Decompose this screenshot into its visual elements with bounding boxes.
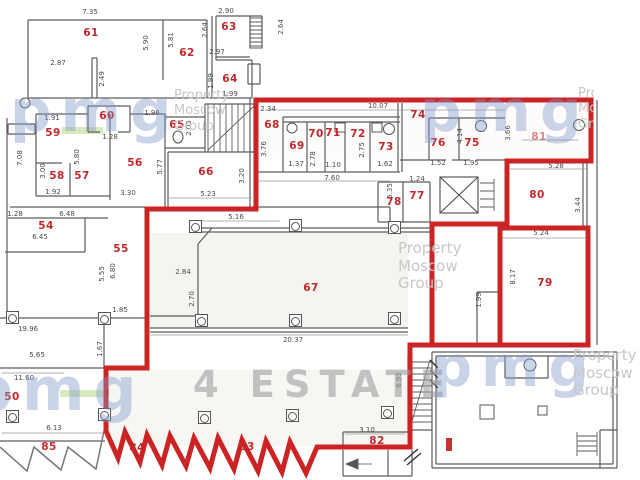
dimension-label: 6.80	[109, 263, 117, 279]
dimension-label: 1.24	[409, 175, 425, 183]
dimension-label: 1.28	[7, 210, 23, 218]
toilet-icon	[384, 124, 395, 135]
dimension-label: 10.07	[368, 102, 388, 110]
corner-stair	[577, 432, 597, 456]
room-number-54: 54	[38, 220, 54, 232]
column-circle	[100, 315, 109, 324]
room-number-84: 84	[129, 442, 145, 454]
room-number-78: 78	[386, 196, 402, 208]
watermark-brand-line: Group	[578, 117, 594, 132]
watermark-brand-line: Property	[174, 88, 229, 103]
dimension-label: 5.81	[167, 32, 175, 48]
room-number-71: 71	[325, 127, 341, 139]
dimension-label: 2.87	[50, 59, 66, 67]
column-icon	[286, 409, 299, 422]
dimension-label: 3.20	[238, 168, 246, 184]
dimension-label: 2.78	[309, 151, 317, 167]
watermark-pmg-logo: pmg	[0, 360, 145, 420]
dimension-label: 6.13	[46, 424, 62, 432]
room-number-57: 57	[74, 170, 90, 182]
room-number-83: 83	[239, 441, 255, 453]
ladder-stair	[250, 18, 262, 48]
column-circle	[383, 409, 392, 418]
dimension-label: 5.90	[142, 35, 150, 51]
dimension-label: 5.77	[156, 159, 164, 175]
dimension-label: 3.10	[359, 426, 375, 434]
dimension-label: 1.95	[463, 159, 479, 167]
watermark-brand-text: PropertyMoscowGroup	[578, 86, 594, 132]
column-circle	[8, 314, 17, 323]
watermark-brand-text: PropertyMoscowGroup	[174, 88, 229, 134]
room-number-82: 82	[369, 435, 385, 447]
dimension-label: 2.90	[218, 7, 234, 15]
watermark-pmg-logo: pmg	[10, 82, 180, 140]
basin-icon	[372, 123, 382, 132]
room-number-70: 70	[308, 128, 324, 140]
shaft-ladder	[480, 179, 494, 211]
dimension-label: 5.24	[533, 229, 549, 237]
dimension-label: 3.76	[260, 141, 268, 157]
column-icon	[289, 314, 302, 327]
watermark-brand-line: Group	[398, 275, 461, 293]
column-icon	[198, 411, 211, 424]
watermark-4estate: 4 ESTATE	[193, 363, 454, 406]
watermark-brand-text: PropertyMoscowGroup	[573, 347, 636, 400]
dimension-label: 2.64	[201, 22, 209, 38]
dimension-label: 1.37	[288, 160, 304, 168]
dimension-label: 3.00	[39, 163, 47, 179]
room-number-56: 56	[127, 157, 143, 169]
elevator-shaft	[440, 177, 478, 213]
watermark-brand-line: Moscow	[578, 101, 594, 116]
dimension-label: 1.10	[325, 161, 341, 169]
room-number-55: 55	[113, 243, 129, 255]
column-icon	[98, 312, 111, 325]
dimension-label: 20.37	[283, 336, 303, 344]
column-icon	[6, 311, 19, 324]
dimension-label: 3.30	[120, 189, 136, 197]
column-circle	[200, 414, 209, 423]
room-number-67: 67	[303, 282, 319, 294]
watermark-brand-line: Group	[573, 382, 636, 400]
column-circle	[288, 412, 297, 421]
dimension-label: 5.23	[200, 190, 216, 198]
dimension-label: 1.52	[430, 159, 446, 167]
dimension-label: 8.17	[509, 269, 517, 285]
toilet-icon	[287, 123, 297, 133]
column-circle	[390, 224, 399, 233]
dimension-label: 5.55	[98, 266, 106, 282]
dimension-label: 7.08	[16, 150, 24, 166]
room-number-77: 77	[409, 190, 425, 202]
watermark-brand-line: Group	[174, 119, 229, 134]
column-circle	[291, 222, 300, 231]
dimension-label: 2.34	[260, 105, 276, 113]
column-icon	[388, 221, 401, 234]
room-number-58: 58	[49, 170, 65, 182]
room-number-68: 68	[264, 119, 280, 131]
column-icon	[289, 219, 302, 232]
door-arrow	[346, 459, 372, 469]
dimension-label: 2.64	[277, 19, 285, 35]
watermark-brand-line: Property	[398, 240, 461, 258]
dimension-label: 7.60	[324, 174, 340, 182]
column-circle	[390, 315, 399, 324]
dimension-label: 1.85	[112, 306, 128, 314]
column-icon	[388, 312, 401, 325]
dimension-label: 1.99	[475, 292, 483, 308]
dimension-label: 5.28	[548, 162, 564, 170]
dimension-label: 1.92	[45, 188, 61, 196]
room-number-69: 69	[289, 140, 305, 152]
pillar-square	[538, 406, 547, 415]
watermark-brand-line: Moscow	[174, 103, 229, 118]
room-number-72: 72	[350, 128, 366, 140]
watermark-brand-line: Property	[573, 347, 636, 365]
pillar-square	[480, 405, 494, 419]
watermark-brand-text: PropertyMoscowGroup	[398, 240, 461, 293]
room-number-64: 64	[222, 73, 238, 85]
dimension-label: 1.99	[207, 73, 215, 89]
dimension-label: 5.16	[228, 213, 244, 221]
room-number-73: 73	[378, 141, 394, 153]
room-number-63: 63	[221, 21, 237, 33]
room-number-62: 62	[179, 47, 195, 59]
room-number-85: 85	[41, 441, 57, 453]
column-icon	[195, 314, 208, 327]
room-number-79: 79	[537, 277, 553, 289]
column-circle	[191, 223, 200, 232]
room-number-80: 80	[529, 189, 545, 201]
dimension-label: 6.45	[32, 233, 48, 241]
column-circle	[197, 317, 206, 326]
watermark-pmg-logo: pmg	[420, 82, 590, 140]
watermark-brand-line: Moscow	[398, 258, 461, 276]
room-number-61: 61	[83, 27, 99, 39]
room-number-66: 66	[198, 166, 214, 178]
column-icon	[189, 220, 202, 233]
dimension-label: 2.75	[358, 142, 366, 158]
dimension-label: 6.48	[59, 210, 75, 218]
dimension-label: 2.97	[209, 48, 225, 56]
dimension-label: 19.96	[18, 325, 38, 333]
dimension-label: 2.70	[188, 291, 196, 307]
column-icon	[381, 406, 394, 419]
watermark-brand-line: Property	[578, 86, 594, 101]
red-marker	[446, 438, 452, 451]
dimension-label: 7.35	[82, 8, 98, 16]
dimension-label: 5.80	[73, 149, 81, 165]
dimension-label: 3.44	[574, 197, 582, 213]
column-circle	[291, 317, 300, 326]
floor-plan: 4 ESTATE 5054555657585960616263646566676…	[0, 0, 640, 480]
dimension-label: 1.62	[377, 160, 393, 168]
dimension-label: 2.84	[175, 268, 191, 276]
watermark-brand-line: Moscow	[573, 365, 636, 383]
